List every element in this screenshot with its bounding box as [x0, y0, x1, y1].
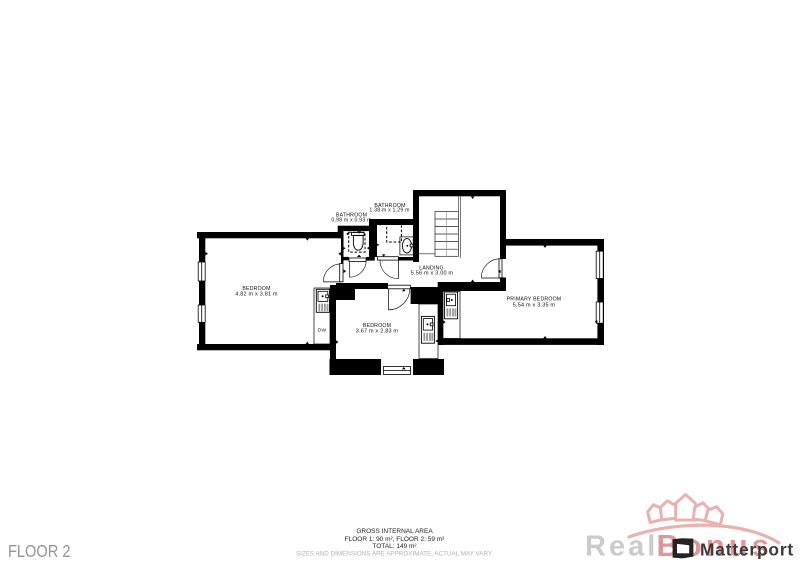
svg-text:1.38 m x 1.29 m: 1.38 m x 1.29 m	[369, 207, 409, 213]
svg-text:5.56 m x 3.00 m: 5.56 m x 3.00 m	[411, 271, 454, 277]
svg-text:DW: DW	[318, 328, 327, 334]
svg-text:FLOOR 2: FLOOR 2	[8, 541, 71, 561]
svg-text:3.67 m x 2.83 m: 3.67 m x 2.83 m	[356, 329, 399, 335]
svg-text:SIZES AND DIMENSIONS ARE APPRO: SIZES AND DIMENSIONS ARE APPROXIMATE, AC…	[296, 551, 493, 558]
svg-text:Matterport: Matterport	[700, 539, 794, 559]
svg-text:Real: Real	[585, 531, 658, 563]
svg-text:TOTAL: 149 m²: TOTAL: 149 m²	[372, 543, 417, 550]
svg-text:4.82 m x 3.81 m: 4.82 m x 3.81 m	[235, 291, 278, 297]
svg-text:5.54 m x 3.35 m: 5.54 m x 3.35 m	[513, 303, 556, 309]
svg-text:0.98 m x 0.93 m: 0.98 m x 0.93 m	[331, 218, 371, 224]
svg-text:FLOOR 1: 90 m², FLOOR 2: 59 m²: FLOOR 1: 90 m², FLOOR 2: 59 m²	[345, 536, 446, 543]
svg-text:GROSS INTERNAL AREA: GROSS INTERNAL AREA	[356, 528, 433, 535]
